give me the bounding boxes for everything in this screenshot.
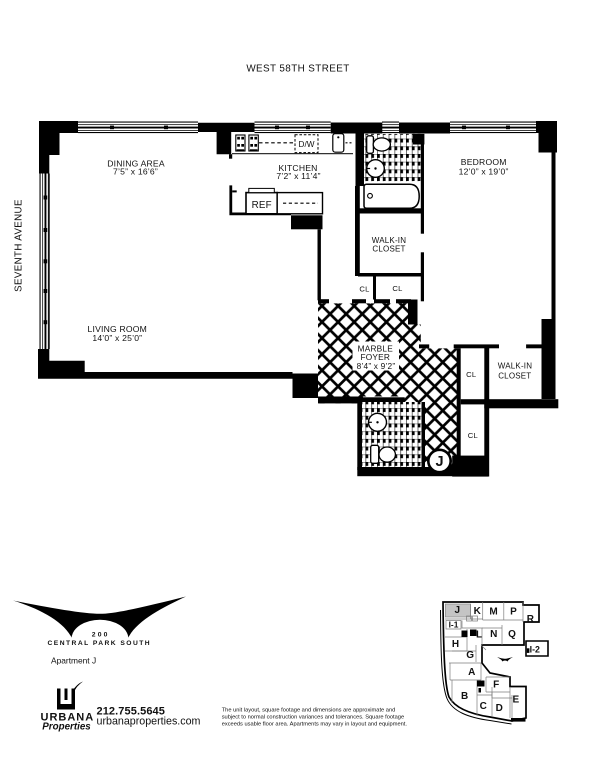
- svg-text:Properties: Properties: [42, 722, 91, 733]
- svg-text:7’2” x 11’4”: 7’2” x 11’4”: [276, 171, 320, 181]
- svg-text:H: H: [452, 639, 459, 650]
- svg-text:exceeds usable floor area. Apa: exceeds usable floor area. Apartments ma…: [222, 722, 408, 728]
- svg-text:D/W: D/W: [299, 140, 315, 149]
- svg-text:8’4” x 9’2”: 8’4” x 9’2”: [357, 361, 396, 371]
- svg-text:B: B: [461, 691, 468, 702]
- svg-text:F: F: [493, 679, 499, 690]
- svg-text:12’0” x 19’0”: 12’0” x 19’0”: [459, 167, 509, 177]
- svg-text:SEVENTH AVENUE: SEVENTH AVENUE: [14, 199, 25, 292]
- svg-text:I-1: I-1: [449, 620, 459, 630]
- svg-text:K: K: [474, 606, 482, 617]
- svg-text:The unit layout, square footag: The unit layout, square footage and dime…: [222, 708, 396, 714]
- svg-text:CL: CL: [466, 370, 476, 379]
- svg-text:WALK-IN: WALK-IN: [372, 236, 406, 245]
- svg-text:I-2: I-2: [530, 645, 540, 655]
- svg-text:7’5” x 16’6”: 7’5” x 16’6”: [113, 167, 158, 177]
- svg-text:urbanaproperties.com: urbanaproperties.com: [97, 715, 201, 727]
- svg-text:E: E: [512, 694, 519, 705]
- svg-text:J: J: [455, 605, 461, 616]
- svg-text:CLOSET: CLOSET: [372, 245, 405, 254]
- svg-text:CL: CL: [468, 431, 478, 440]
- svg-text:CL: CL: [392, 284, 402, 293]
- svg-text:200: 200: [92, 631, 110, 638]
- svg-text:CENTRAL PARK SOUTH: CENTRAL PARK SOUTH: [48, 640, 152, 647]
- svg-text:D: D: [496, 703, 503, 714]
- svg-text:A: A: [468, 667, 475, 678]
- svg-text:N: N: [490, 629, 497, 640]
- svg-text:REF: REF: [252, 200, 272, 211]
- svg-text:P: P: [510, 606, 517, 617]
- svg-text:CL: CL: [359, 285, 369, 294]
- svg-text:C: C: [480, 701, 487, 712]
- svg-text:CLOSET: CLOSET: [498, 372, 531, 381]
- svg-text:G: G: [466, 650, 474, 661]
- svg-text:WALK-IN: WALK-IN: [498, 362, 532, 371]
- svg-text:14’0” x 25’0”: 14’0” x 25’0”: [92, 333, 142, 343]
- svg-text:Q: Q: [508, 629, 516, 640]
- svg-text:J: J: [435, 454, 443, 470]
- svg-text:WEST 58TH STREET: WEST 58TH STREET: [246, 64, 349, 75]
- svg-text:Apartment J: Apartment J: [51, 655, 96, 665]
- svg-text:L: L: [476, 630, 482, 641]
- svg-text:R: R: [527, 614, 535, 625]
- svg-text:M: M: [489, 606, 497, 617]
- svg-text:subject to normal construction: subject to normal construction variances…: [222, 715, 404, 721]
